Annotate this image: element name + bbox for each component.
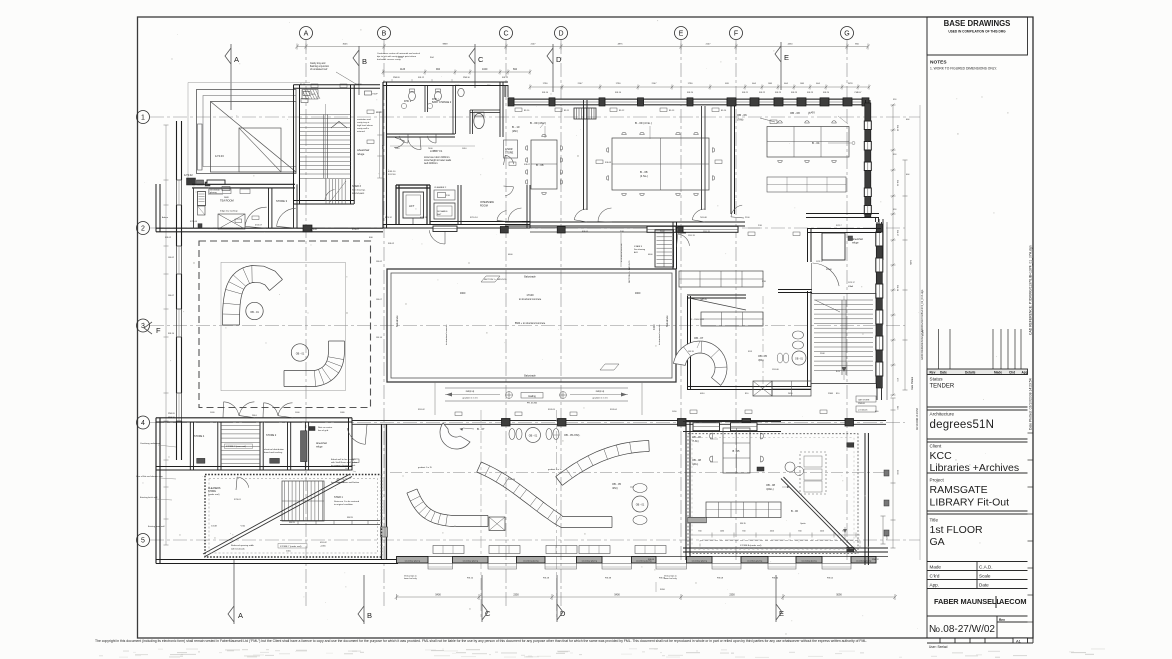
svg-text:SECTION 1 + DWG N.55: SECTION 1 + DWG N.55 — [484, 279, 507, 281]
svg-text:B - 08: B - 08 — [536, 163, 544, 167]
svg-text:F/55.03: F/55.03 — [548, 409, 556, 411]
svg-text:Balustrade: Balustrade — [666, 315, 669, 327]
svg-text:board and trunking: board and trunking — [264, 451, 283, 454]
svg-text:B1.13: B1.13 — [669, 110, 675, 112]
svg-text:PMF.20: PMF.20 — [355, 84, 363, 86]
svg-text:OB - 01: OB - 01 — [636, 504, 645, 507]
svg-text:2147: 2147 — [531, 44, 537, 46]
svg-text:OB - 06: OB - 06 — [737, 113, 747, 117]
svg-text:B1.19: B1.19 — [376, 112, 382, 114]
svg-text:STAIR 3: STAIR 3 — [352, 185, 362, 188]
svg-text:B - 09 (4 No.): B - 09 (4 No.) — [635, 121, 652, 125]
svg-text:NOTES: NOTES — [930, 60, 947, 66]
svg-text:2350: 2350 — [729, 594, 735, 597]
svg-text:Existing brick wall: Existing brick wall — [140, 496, 158, 499]
svg-text:F/70.11: F/70.11 — [420, 217, 428, 219]
svg-text:17100: 17100 — [526, 293, 534, 297]
svg-text:F/N/13: F/N/13 — [347, 517, 353, 519]
svg-text:Date Plotted: 02/10/2008 14: Date Plotted: 02/10/2008 14:23:54 — [1029, 378, 1033, 430]
svg-text:810: 810 — [698, 531, 701, 533]
svg-text:F/N.23: F/N.23 — [775, 92, 782, 94]
svg-text:loading: loading — [528, 396, 536, 398]
svg-text:F/S.08: F/S.08 — [605, 162, 612, 164]
svg-text:F/N.10: F/N.10 — [615, 92, 622, 94]
svg-text:Balustrade: Balustrade — [524, 276, 536, 279]
svg-text:Made: Made — [930, 565, 942, 570]
svg-text:Project: Project — [930, 478, 945, 483]
svg-text:B: B — [367, 611, 372, 620]
svg-text:B - 08: B - 08 — [640, 170, 648, 174]
svg-text:lower leaf only: lower leaf only — [404, 578, 417, 580]
svg-text:02/10/2008 14:23:54: 02/10/2008 14:23:54 — [916, 407, 919, 430]
svg-text:F/N.10: F/N.10 — [467, 578, 474, 580]
svg-text:B: B — [362, 57, 367, 66]
svg-text:F/N.25: F/N.25 — [896, 125, 898, 132]
svg-text:F/N.28: F/N.28 — [543, 578, 550, 580]
svg-text:STORE 4: STORE 4 — [194, 435, 205, 438]
svg-text:F/55.04: F/55.04 — [610, 409, 618, 411]
svg-text:1790: 1790 — [688, 83, 694, 85]
svg-text:C: C — [478, 55, 484, 64]
svg-text:F/N.07: F/N.07 — [659, 578, 666, 580]
svg-text:1790: 1790 — [543, 83, 549, 85]
svg-text:A: A — [304, 31, 309, 38]
svg-text:Status: Status — [930, 377, 944, 382]
svg-text:wheelchair: wheelchair — [357, 148, 370, 152]
svg-text:sanitation and: sanitation and — [357, 118, 371, 121]
svg-text:secondary glazing: secondary glazing — [747, 560, 762, 563]
svg-text:Scale: Scale — [979, 574, 991, 579]
svg-text:A: A — [238, 611, 243, 620]
svg-text:1/N.62: 1/N.62 — [376, 261, 383, 263]
svg-text:F/70.08: F/70.08 — [310, 229, 318, 231]
svg-text:Date: Date — [940, 370, 947, 374]
svg-text:1/55.06: 1/55.06 — [772, 369, 780, 371]
svg-text:Chd: Chd — [1009, 370, 1015, 374]
svg-text:OB - 05 /2Nr): OB - 05 /2Nr) — [564, 433, 580, 437]
svg-text:Balustrade: Balustrade — [396, 315, 399, 327]
svg-text:to structural concrete: to structural concrete — [445, 324, 448, 345]
svg-text:STORE 2 (over roof): STORE 2 (over roof) — [226, 445, 246, 448]
svg-text:3/55.02: 3/55.02 — [418, 409, 426, 411]
svg-text:1/N.35: 1/N.35 — [688, 351, 695, 353]
svg-text:/OAA: /OAA — [848, 285, 853, 288]
svg-text:STORE 2: STORE 2 — [266, 434, 277, 437]
svg-text:OB - 07: OB - 07 — [694, 336, 704, 340]
svg-text:GRID REFERENCE1 P:/DRWG/1137/: GRID REFERENCE1 P:/DRWG/1137/LIB+1374_01… — [920, 289, 924, 360]
svg-text:F/2.68: F/2.68 — [826, 269, 833, 271]
svg-text:gradient 1 in 15: gradient 1 in 15 — [548, 468, 563, 471]
svg-text:secondary glazing: secondary glazing — [405, 560, 420, 563]
svg-text:2908: 2908 — [828, 393, 834, 395]
svg-text:OB - 01: OB - 01 — [529, 435, 538, 438]
svg-text:B - 10: B - 10 — [512, 125, 520, 129]
svg-text:PMF.08: PMF.08 — [858, 403, 866, 405]
svg-text:KCC: KCC — [930, 450, 953, 462]
svg-text:F/70.04: F/70.04 — [190, 221, 198, 223]
svg-text:PMF.10: PMF.10 — [463, 77, 471, 79]
svg-text:/2Nr): /2Nr) — [612, 487, 618, 490]
svg-text:(under roof): (under roof) — [208, 493, 220, 496]
svg-text:GA: GA — [930, 536, 945, 548]
svg-text:904: 904 — [436, 68, 441, 71]
svg-text:to support chimney stack: to support chimney stack — [331, 464, 356, 467]
svg-text:F/N.26: F/N.26 — [896, 180, 898, 187]
svg-text:ramp up: ramp up — [596, 390, 605, 393]
svg-text:OB - 06: OB - 06 — [692, 435, 701, 439]
svg-text:gradient 1 in 15: gradient 1 in 15 — [592, 397, 608, 400]
svg-text:Lintel height to lower leads: Lintel height to lower leads — [424, 159, 452, 162]
svg-text:F/N.20: F/N.20 — [687, 92, 694, 94]
svg-text:7/05.08: 7/05.08 — [700, 217, 708, 219]
svg-text:FABER MAUNSELL: FABER MAUNSELL — [934, 597, 1001, 606]
svg-text:F/N.08: F/N.08 — [717, 578, 724, 580]
svg-text:cavity tray at: cavity tray at — [357, 121, 370, 124]
svg-text:B1.11: B1.11 — [564, 110, 570, 112]
svg-text:secondary glazing: secondary glazing — [582, 560, 597, 563]
svg-text:1578: 1578 — [848, 83, 854, 85]
svg-text:SECTION 4 + DWG N.55: SECTION 4 + DWG N.55 — [629, 260, 631, 283]
svg-text:5400: 5400 — [435, 594, 441, 597]
svg-text:glazing: glazing — [210, 192, 217, 194]
svg-text:5/CC00: 5/CC00 — [388, 174, 396, 176]
svg-text:Edard wall to fire through: Edard wall to fire through — [331, 458, 356, 461]
svg-text:4600: 4600 — [460, 292, 466, 295]
svg-text:PMF.26: PMF.26 — [168, 417, 176, 419]
svg-text:App: App — [1022, 370, 1028, 374]
svg-text:1/23.17: 1/23.17 — [848, 282, 856, 284]
svg-text:OB - 01: OB - 01 — [296, 352, 305, 355]
svg-text:with brickwork: with brickwork — [231, 548, 246, 551]
svg-text:Balustrade: Balustrade — [524, 375, 536, 378]
svg-text:brickwork crosses cavity.: brickwork crosses cavity. — [377, 58, 401, 61]
svg-text:B - 09 (4No.): B - 09 (4No.) — [530, 121, 546, 125]
svg-text:E: E — [784, 53, 789, 62]
svg-text:Existing lower wall: Existing lower wall — [148, 525, 165, 528]
svg-text:PMF.07: PMF.07 — [855, 92, 863, 94]
svg-text:BelT: BelT — [437, 214, 442, 216]
svg-text:secondary glazing: secondary glazing — [692, 560, 707, 563]
svg-text:to original condition: to original condition — [334, 503, 354, 506]
svg-text:D: D — [556, 55, 562, 64]
svg-text:4600: 4600 — [635, 292, 641, 295]
svg-text:1/N.14: 1/N.14 — [376, 337, 383, 339]
svg-text:F/N.14: F/N.14 — [168, 333, 175, 335]
svg-text:(2Nr): (2Nr) — [512, 129, 518, 133]
svg-text:wheelchair: wheelchair — [316, 442, 327, 445]
svg-text:gradient 1 in 15: gradient 1 in 15 — [462, 397, 478, 400]
svg-text:F/N.38: F/N.38 — [605, 578, 612, 580]
svg-text:OB - 08: OB - 08 — [692, 458, 701, 462]
svg-text:5435: 5435 — [909, 260, 911, 266]
svg-text:wheelchair: wheelchair — [852, 238, 863, 241]
svg-text:LIBRARY Fit-Out: LIBRARY Fit-Out — [930, 497, 1010, 509]
svg-text:B - 06: B - 06 — [791, 509, 798, 513]
svg-text:2147: 2147 — [578, 83, 584, 85]
svg-text:F: F — [156, 326, 161, 335]
svg-text:1st FLOOR: 1st FLOOR — [930, 524, 984, 536]
svg-text:F/70.01: F/70.01 — [234, 499, 242, 501]
svg-text:4010: 4010 — [770, 531, 774, 533]
svg-text:F/N.02: F/N.02 — [165, 237, 172, 239]
svg-text:664: 664 — [513, 68, 518, 71]
svg-text:BABY CHANGE 2: BABY CHANGE 2 — [432, 101, 452, 104]
svg-text:Arbour: Arbour — [162, 216, 168, 219]
svg-text:TEA ROOM: TEA ROOM — [220, 199, 234, 203]
svg-text:V/10: V/10 — [241, 526, 246, 528]
svg-text:FFL 65.865: FFL 65.865 — [527, 403, 538, 405]
svg-text:F/N.23: F/N.23 — [807, 92, 814, 94]
svg-text:(4 No.): (4 No.) — [640, 174, 648, 178]
svg-text:F/70.12: F/70.12 — [385, 217, 393, 219]
svg-text:external: external — [357, 130, 365, 133]
svg-text:D: D — [560, 609, 566, 618]
svg-text:5600 + to structural concret: 5600 + to structural concrete — [515, 322, 546, 325]
svg-text:refuge: refuge — [316, 446, 323, 449]
svg-text:B - 05: B - 05 — [733, 449, 740, 453]
svg-text:F/N.24: F/N.24 — [823, 92, 830, 94]
svg-text:/(6A): /(6A) — [758, 359, 764, 362]
svg-text:gradient 1 in 15: gradient 1 in 15 — [418, 466, 433, 469]
svg-text:3045: 3045 — [343, 44, 349, 46]
svg-text:at 1/05x05: at 1/05x05 — [858, 409, 868, 412]
svg-text:AECOM: AECOM — [999, 597, 1027, 606]
svg-text:degrees51N: degrees51N — [930, 419, 995, 431]
svg-text:F,50P: F,50P — [373, 94, 379, 96]
svg-text:Ope/m: Ope/m — [800, 523, 806, 525]
svg-text:2147: 2147 — [706, 44, 712, 46]
svg-text:1/N.62: 1/N.62 — [168, 257, 175, 259]
svg-text:OB - 05: OB - 05 — [612, 482, 621, 486]
svg-text:F/N.10: F/N.10 — [542, 92, 549, 94]
svg-text:E: E — [779, 609, 784, 618]
svg-text:1790: 1790 — [616, 83, 622, 85]
svg-text:fridge low worktop: fridge low worktop — [220, 210, 238, 213]
svg-text:2147: 2147 — [652, 83, 658, 85]
svg-text:F/70.07: F/70.07 — [352, 229, 360, 231]
svg-text:1/N4.10: 1/N4.10 — [508, 479, 516, 481]
svg-text:cavity wall is: cavity wall is — [357, 127, 370, 130]
svg-text:Rev: Rev — [930, 370, 936, 374]
svg-text:1/55.13: 1/55.13 — [703, 231, 711, 233]
svg-text:4: 4 — [141, 420, 145, 427]
svg-text:lower leaf only: lower leaf only — [664, 578, 677, 580]
svg-text:1040: 1040 — [482, 68, 488, 71]
svg-text:90/LN/5,A03: 90/LN/5,A03 — [352, 192, 365, 195]
svg-text:/(2Ab-): /(2Ab-) — [766, 488, 774, 491]
svg-text:Client: Client — [930, 444, 942, 449]
svg-text:CLEANERS: CLEANERS — [208, 487, 221, 490]
svg-text:OB - 08: OB - 08 — [790, 111, 800, 115]
svg-text:(7Ab): (7Ab) — [737, 118, 743, 122]
svg-text:2: 2 — [141, 226, 145, 233]
svg-text:CAD REFERENCE: P:/DRWG/1137/L: CAD REFERENCE: P:/DRWG/1137/LIB+1374_01_… — [1029, 245, 1033, 335]
svg-text:refuge: refuge — [852, 242, 859, 245]
svg-text:+2065: +2065 — [320, 546, 327, 548]
svg-text:secondary glazing: secondary glazing — [801, 560, 816, 563]
svg-text:See drawings: See drawings — [352, 189, 366, 192]
svg-text:STORE A (under roof): STORE A (under roof) — [740, 544, 762, 547]
svg-text:F/N/13: F/N/13 — [289, 522, 295, 524]
svg-text:OAT STORE: OAT STORE — [858, 399, 870, 402]
svg-text:DF MAIDS: DF MAIDS — [437, 210, 448, 213]
svg-text:to structural concrete: to structural concrete — [519, 298, 542, 301]
svg-text:1/N.67: 1/N.67 — [168, 295, 175, 297]
svg-text:F/N.35: F/N.35 — [740, 523, 746, 525]
svg-text:2410: 2410 — [820, 531, 824, 533]
svg-text:F/N.12: F/N.12 — [418, 77, 425, 79]
svg-text:F/N.28: F/N.28 — [896, 285, 898, 292]
svg-text:F/S.06: F/S.06 — [582, 231, 589, 233]
svg-text:Nots on centre: Nots on centre — [318, 426, 333, 429]
svg-text:OAT 05: OAT 05 — [700, 298, 708, 301]
svg-text:STORE 7 (under roof): STORE 7 (under roof) — [280, 545, 302, 548]
svg-text:STORE: STORE — [505, 152, 514, 155]
svg-text:ramp up: ramp up — [466, 390, 475, 393]
svg-text:STAIR 5: STAIR 5 — [634, 245, 643, 248]
svg-text:F/21.7: F/21.7 — [836, 225, 843, 227]
svg-text:electrical distribution: electrical distribution — [264, 448, 285, 451]
svg-text:9869: 9869 — [443, 44, 449, 46]
svg-text:Lintel over door 2100mm.: Lintel over door 2100mm. — [424, 156, 450, 159]
svg-text:OB - 08: OB - 08 — [766, 483, 775, 487]
svg-text:PMF.26: PMF.26 — [168, 413, 176, 415]
svg-text:B - 07: B - 07 — [477, 427, 485, 431]
svg-text:F: F — [734, 31, 738, 38]
svg-text:1430: 1430 — [720, 531, 724, 533]
svg-text:4400: 4400 — [653, 324, 656, 330]
svg-text:flashing at junction: flashing at junction — [310, 65, 330, 68]
svg-text:TENDER: TENDER — [930, 384, 955, 390]
svg-text:C: C — [503, 31, 508, 38]
svg-text:PMF.12: PMF.12 — [872, 559, 880, 561]
svg-text:B1.12: B1.12 — [619, 110, 625, 112]
svg-text:1123: 1123 — [400, 68, 406, 71]
svg-text:OB - 01: OB - 01 — [795, 359, 804, 361]
svg-text:line of grid.: line of grid. — [318, 429, 329, 432]
svg-text:B - 04: B - 04 — [812, 141, 820, 145]
svg-text:Vertical dps to: Vertical dps to — [664, 575, 677, 578]
svg-text:Rev: Rev — [999, 618, 1005, 622]
svg-text:B: B — [382, 31, 387, 38]
svg-text:/7 Ab): /7 Ab) — [692, 440, 699, 443]
svg-text:PMF.20: PMF.20 — [393, 77, 401, 79]
svg-text:Staircase 1 to be restored: Staircase 1 to be restored — [334, 500, 360, 503]
svg-text:E: E — [679, 31, 684, 38]
svg-text:LIFT: LIFT — [409, 204, 415, 208]
svg-text:5: 5 — [141, 538, 145, 545]
svg-text:Date: Date — [979, 583, 989, 588]
svg-text:F/N.30: F/N.30 — [772, 578, 779, 580]
svg-text:3010: 3010 — [660, 589, 666, 591]
svg-text:DHC 2: DHC 2 — [404, 100, 412, 103]
svg-text:4/55.07: 4/55.07 — [255, 225, 263, 227]
svg-text:G: G — [844, 31, 849, 38]
svg-text:1. WORK TO FIGURED DIMENSIONS: 1. WORK TO FIGURED DIMENSIONS ONLY. — [930, 67, 997, 71]
svg-text:USED IN COMPILATION OF THIS DR: USED IN COMPILATION OF THIS DRG — [948, 30, 1006, 34]
svg-text:F/N.23: F/N.23 — [791, 92, 798, 94]
svg-text:App.: App. — [930, 583, 939, 588]
svg-text:Overhang under roof: Overhang under roof — [140, 442, 161, 445]
svg-text:CLEANER 2: CLEANER 2 — [434, 186, 447, 189]
svg-text:B1.19: B1.19 — [300, 84, 306, 86]
svg-text:B1.10: B1.10 — [524, 110, 530, 112]
svg-text:C: C — [485, 609, 491, 618]
svg-text:OB - 05: OB - 05 — [758, 354, 767, 358]
svg-text:5090: 5090 — [836, 594, 842, 597]
svg-text:Continuous section of horizont: Continuous section of horizontal and ver… — [377, 52, 420, 55]
svg-text:F/N.12: F/N.12 — [502, 77, 509, 79]
svg-text:A: A — [234, 55, 239, 64]
svg-text:4450: 4450 — [788, 44, 794, 46]
svg-text:Libraries +Archives: Libraries +Archives — [930, 462, 1020, 474]
svg-text:F/N.09: F/N.09 — [648, 559, 655, 561]
svg-text:C.A.D.: C.A.D. — [979, 565, 993, 570]
svg-text:810: 810 — [742, 531, 745, 533]
svg-text:refuge: refuge — [357, 152, 365, 156]
svg-text:1/55.13: 1/55.13 — [688, 235, 696, 237]
svg-text:F/N.27: F/N.27 — [896, 230, 898, 237]
svg-text:secondary glazing: secondary glazing — [523, 560, 538, 563]
svg-text:Reduced opening width: Reduced opening width — [231, 544, 255, 547]
svg-text:1/N.07: 1/N.07 — [376, 299, 383, 301]
svg-text:ROOM: ROOM — [480, 205, 488, 208]
svg-text:well 2100mm.: well 2100mm. — [424, 163, 439, 165]
svg-text:The copyright in this document: The copyright in this document (includin… — [95, 639, 867, 643]
svg-text:F/N.05: F/N.05 — [827, 578, 834, 580]
svg-text:to structural concrete: to structural concrete — [658, 324, 661, 345]
svg-text:STAIR 1: STAIR 1 — [334, 496, 344, 499]
svg-text:User: Seelad: User: Seelad — [929, 645, 948, 649]
svg-text:B1 - DWG N.22: B1 - DWG N.22 — [690, 319, 705, 321]
svg-text:4875: 4875 — [618, 44, 624, 46]
svg-text:F/S.07: F/S.07 — [524, 164, 531, 166]
svg-text:line of Staff Room wall below: line of Staff Room wall below — [331, 481, 359, 484]
svg-text:D: D — [558, 31, 563, 38]
svg-text:to structural concrete: to structural concrete — [620, 242, 623, 262]
svg-text:of reinstated roof: of reinstated roof — [310, 68, 328, 71]
svg-text:1/74.02: 1/74.02 — [184, 173, 193, 177]
svg-text:2350: 2350 — [513, 594, 519, 597]
svg-text:B1.14: B1.14 — [721, 110, 727, 112]
svg-text:STORE: STORE — [208, 491, 216, 493]
svg-text:STORE 3: STORE 3 — [276, 199, 288, 203]
svg-text:See drawing: See drawing — [634, 249, 645, 251]
svg-text:810: 810 — [798, 531, 801, 533]
svg-text:F/N.22: F/N.22 — [759, 92, 766, 94]
svg-text:Cavity tray and: Cavity tray and — [310, 62, 326, 65]
svg-text:high level where: high level where — [357, 124, 374, 127]
svg-text:dpc to link with cavity tray a: dpc to link with cavity tray at point wh… — [377, 55, 417, 58]
svg-text:secondary glazing: secondary glazing — [463, 560, 478, 563]
svg-text:C'k'd: C'k'd — [930, 574, 940, 579]
svg-text:Architecture: Architecture — [930, 412, 955, 417]
svg-text:Made: Made — [994, 370, 1002, 374]
svg-text:4/55.02: 4/55.02 — [320, 542, 328, 544]
svg-text:Date Plotted: Date Plotted — [911, 376, 914, 390]
svg-text:1/23.17: 1/23.17 — [816, 261, 824, 263]
svg-text:Line of flat roof dormer over: Line of flat roof dormer over — [136, 475, 163, 478]
svg-text:Details: Details — [965, 370, 976, 374]
svg-text:F/N.02: F/N.02 — [388, 243, 395, 245]
svg-text:OB - 01: OB - 01 — [250, 311, 259, 314]
svg-text:RAMSGATE: RAMSGATE — [930, 484, 988, 496]
svg-text:1/74.03: 1/74.03 — [215, 154, 224, 158]
svg-text:/(Ab-): /(Ab-) — [692, 463, 698, 466]
svg-text:F/N.21: F/N.21 — [742, 92, 749, 94]
svg-text:Vertical dps to: Vertical dps to — [404, 575, 417, 578]
svg-text:5400: 5400 — [614, 594, 620, 597]
